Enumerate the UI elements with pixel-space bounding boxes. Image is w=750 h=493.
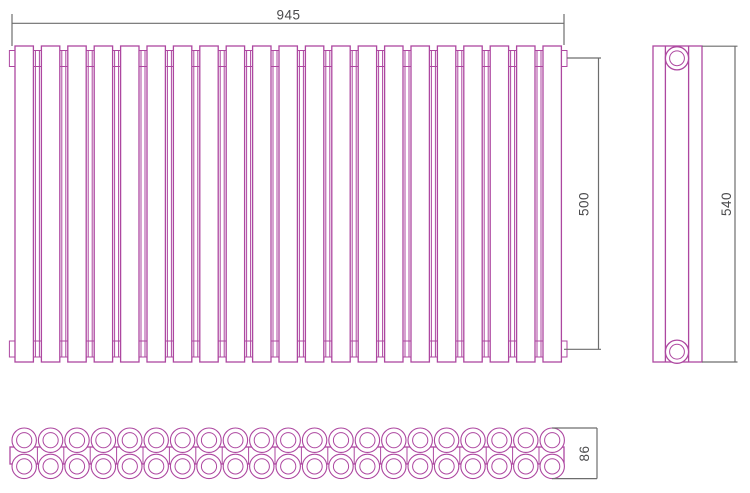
bottom-view bbox=[10, 428, 564, 479]
front-tube-column bbox=[305, 46, 323, 362]
tube-circle-outer-front-row bbox=[540, 428, 564, 452]
tube-circle-outer-front-row bbox=[302, 428, 326, 452]
tube-circle-outer-back-row bbox=[38, 454, 62, 478]
tube-circle-outer-back-row bbox=[461, 454, 485, 478]
front-tube-column bbox=[41, 46, 59, 362]
radiator-technical-drawing: 945 500 540 86 bbox=[0, 0, 750, 493]
front-tube-column bbox=[385, 46, 403, 362]
tube-circle-outer-back-row bbox=[65, 454, 89, 478]
tube-circle-outer-back-row bbox=[514, 454, 538, 478]
front-tube-column bbox=[147, 46, 165, 362]
dimension-width: 945 bbox=[12, 8, 564, 47]
dimension-collector-height-label: 500 bbox=[577, 192, 592, 216]
tube-circle-outer-back-row bbox=[276, 454, 300, 478]
tube-circle-outer-front-row bbox=[223, 428, 247, 452]
tube-circle-outer-back-row bbox=[540, 454, 564, 478]
collector-stub bbox=[561, 51, 567, 67]
tube-circle-outer-back-row bbox=[144, 454, 168, 478]
front-tube-column bbox=[543, 46, 561, 362]
tube-circle-outer-back-row bbox=[118, 454, 142, 478]
dimension-collector-height: 500 bbox=[564, 58, 601, 349]
collector-stub bbox=[9, 341, 15, 357]
tube-circle-outer-front-row bbox=[38, 428, 62, 452]
front-tube-column bbox=[464, 46, 482, 362]
front-tube-column bbox=[490, 46, 508, 362]
side-view bbox=[653, 46, 702, 363]
tube-circle-outer-back-row bbox=[434, 454, 458, 478]
tube-circle-outer-front-row bbox=[408, 428, 432, 452]
tube-circle-outer-front-row bbox=[118, 428, 142, 452]
tube-circle-outer-front-row bbox=[461, 428, 485, 452]
tube-circle-outer-back-row bbox=[408, 454, 432, 478]
tube-circle-outer-front-row bbox=[65, 428, 89, 452]
tube-circle-outer-front-row bbox=[197, 428, 221, 452]
tube-circle-outer-back-row bbox=[329, 454, 353, 478]
dimension-depth-label: 86 bbox=[577, 445, 592, 461]
drawing-page: 945 500 540 86 bbox=[0, 0, 750, 493]
tube-circle-outer-back-row bbox=[487, 454, 511, 478]
front-tube-column bbox=[94, 46, 112, 362]
tube-circle-outer-front-row bbox=[170, 428, 194, 452]
tube-circle-outer-front-row bbox=[434, 428, 458, 452]
front-tube-column bbox=[411, 46, 429, 362]
front-tube-column bbox=[200, 46, 218, 362]
tube-circle-outer-front-row bbox=[487, 428, 511, 452]
tube-circle-outer-back-row bbox=[302, 454, 326, 478]
front-tube-column bbox=[121, 46, 139, 362]
tube-circle-outer-back-row bbox=[91, 454, 115, 478]
tube-circle-outer-back-row bbox=[223, 454, 247, 478]
bottom-port-circle bbox=[665, 340, 688, 363]
tube-circle-outer-front-row bbox=[514, 428, 538, 452]
front-tube-column bbox=[279, 46, 297, 362]
front-tube-column bbox=[15, 46, 33, 362]
dimension-width-label: 945 bbox=[276, 8, 300, 23]
dimension-overall-height-label: 540 bbox=[719, 192, 734, 216]
front-tube-column bbox=[68, 46, 86, 362]
side-view-body bbox=[653, 46, 702, 362]
dimension-overall-height: 540 bbox=[702, 46, 738, 362]
tube-circle-outer-back-row bbox=[250, 454, 274, 478]
tube-circle-outer-back-row bbox=[197, 454, 221, 478]
front-tube-column bbox=[173, 46, 191, 362]
front-tube-column bbox=[226, 46, 244, 362]
tube-circle-outer-back-row bbox=[12, 454, 36, 478]
front-view bbox=[9, 46, 567, 362]
tube-circle-outer-back-row bbox=[170, 454, 194, 478]
tube-circle-outer-front-row bbox=[329, 428, 353, 452]
tube-circle-outer-front-row bbox=[91, 428, 115, 452]
tube-circle-outer-front-row bbox=[276, 428, 300, 452]
tube-circle-outer-back-row bbox=[355, 454, 379, 478]
front-tube-column bbox=[358, 46, 376, 362]
top-port-circle bbox=[665, 47, 688, 70]
front-tube-column bbox=[517, 46, 535, 362]
tube-circle-outer-front-row bbox=[144, 428, 168, 452]
front-tube-column bbox=[253, 46, 271, 362]
front-tube-column bbox=[332, 46, 350, 362]
tube-circle-outer-back-row bbox=[382, 454, 406, 478]
tube-circle-outer-front-row bbox=[12, 428, 36, 452]
tube-circle-outer-front-row bbox=[355, 428, 379, 452]
tube-circle-outer-front-row bbox=[382, 428, 406, 452]
front-tube-column bbox=[437, 46, 455, 362]
tube-circle-outer-front-row bbox=[250, 428, 274, 452]
collector-stub bbox=[9, 51, 15, 67]
